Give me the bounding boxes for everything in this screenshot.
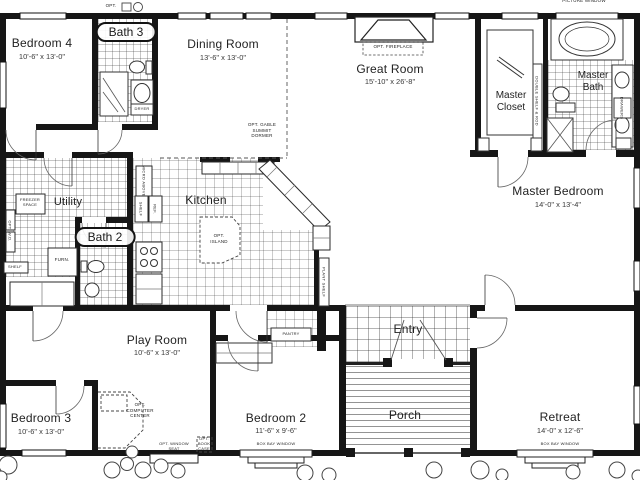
shelf2-note: SHELF: [139, 202, 144, 216]
freezer-note: FREEZER SPACE: [17, 197, 43, 207]
porch-post: [383, 358, 392, 367]
opt-book-case-note: OPT. BOOK CASE: [193, 436, 215, 451]
bedroom4-label: Bedroom 4: [12, 36, 73, 50]
pantry-note: PANTRY: [282, 331, 299, 336]
bath2-label: Bath 2: [75, 227, 136, 247]
porch-post: [461, 448, 470, 457]
kitchen-label: Kitchen: [185, 193, 226, 207]
opt-island-note: OPT. ISLAND: [206, 233, 232, 244]
master-bedroom-label: Master Bedroom: [512, 184, 604, 198]
closet-rod: [497, 60, 522, 78]
bedroom2-boxbay-note: BOX BAY WINDOW: [257, 441, 296, 446]
porch-post: [404, 448, 413, 457]
double-rod-note: DOUBLE SHELF & ROD: [535, 76, 540, 126]
entry-door-leaf: [420, 320, 446, 360]
bedroom3-label: Bedroom 3: [11, 411, 72, 425]
opt-dormer-note: OPT. GABLE SUMMIT DORMER: [245, 122, 279, 139]
bedroom2-dims: 11'-6" x 9'-6": [255, 426, 296, 435]
great-room-label: Great Room: [356, 62, 423, 76]
bath3-label: Bath 3: [96, 22, 157, 42]
opt-window-seat-note: OPT. WINDOW SEAT: [154, 441, 194, 451]
porch-post: [346, 448, 355, 457]
bedroom4-dims: 10'-6" x 13'-0": [19, 52, 65, 61]
master-bedroom-dims: 14'-0" x 13'-4": [535, 200, 581, 209]
bath3-toilet-icon: [130, 61, 145, 73]
bedroom2-label: Bedroom 2: [246, 411, 307, 425]
dining-dims: 13'-6" x 13'-0": [200, 53, 246, 62]
wd-stack-note: OPT. W.D.: [8, 220, 13, 241]
bath2-sink-icon: [85, 283, 99, 297]
retreat-label: Retreat: [540, 410, 581, 424]
bath2-toilet-icon: [81, 261, 104, 298]
sink-icon-2: [615, 117, 629, 133]
shelf-note: SHELF: [8, 264, 22, 269]
dining-label: Dining Room: [187, 37, 259, 51]
great-room-dims: 15'-10" x 26'-8": [365, 77, 415, 86]
furn-note: FURN.: [55, 257, 70, 263]
opt-computer-note: OPT. COMPUTER CENTER: [121, 402, 159, 419]
entry-label: Entry: [393, 322, 422, 336]
sink-icon: [615, 72, 629, 88]
chair-icon: [126, 446, 138, 458]
floorplan: Bedroom 4 10'-6" x 13'-0" Bath 3 Dining …: [0, 0, 640, 480]
top-opt-fixture-icons: [122, 3, 143, 12]
master-closet-label: Master Closet: [489, 90, 533, 113]
dryer-note: DRYER: [135, 106, 150, 111]
micro-note: MICRO ABOVE: [142, 165, 147, 196]
master-bath-label: Master Bath: [573, 70, 613, 93]
picture-window-note: PICTURE WINDOW: [562, 0, 606, 4]
bedroom3-dims: 10'-6" x 13'-0": [18, 427, 64, 436]
playroom-label: Play Room: [127, 333, 188, 347]
retreat-boxbay-note: BOX BAY WINDOW: [541, 441, 580, 446]
retreat-dims: 14'-0" x 12'-6": [537, 426, 583, 435]
ref-note: REF.: [153, 204, 158, 214]
plant-shelf-note: PLANT SHELF: [322, 267, 327, 297]
master-toilet-icon: [553, 87, 569, 101]
opt-top-note: OPT.: [106, 3, 117, 9]
playroom-dims: 10'-6" x 13'-0": [134, 348, 180, 357]
utility-label: Utility: [54, 196, 82, 208]
utility-fixtures: [4, 194, 77, 306]
opt-fireplace-note: OPT. FIREPLACE: [364, 44, 422, 50]
porch-label: Porch: [389, 408, 421, 422]
drawers-note: DRAWERS: [620, 97, 625, 119]
